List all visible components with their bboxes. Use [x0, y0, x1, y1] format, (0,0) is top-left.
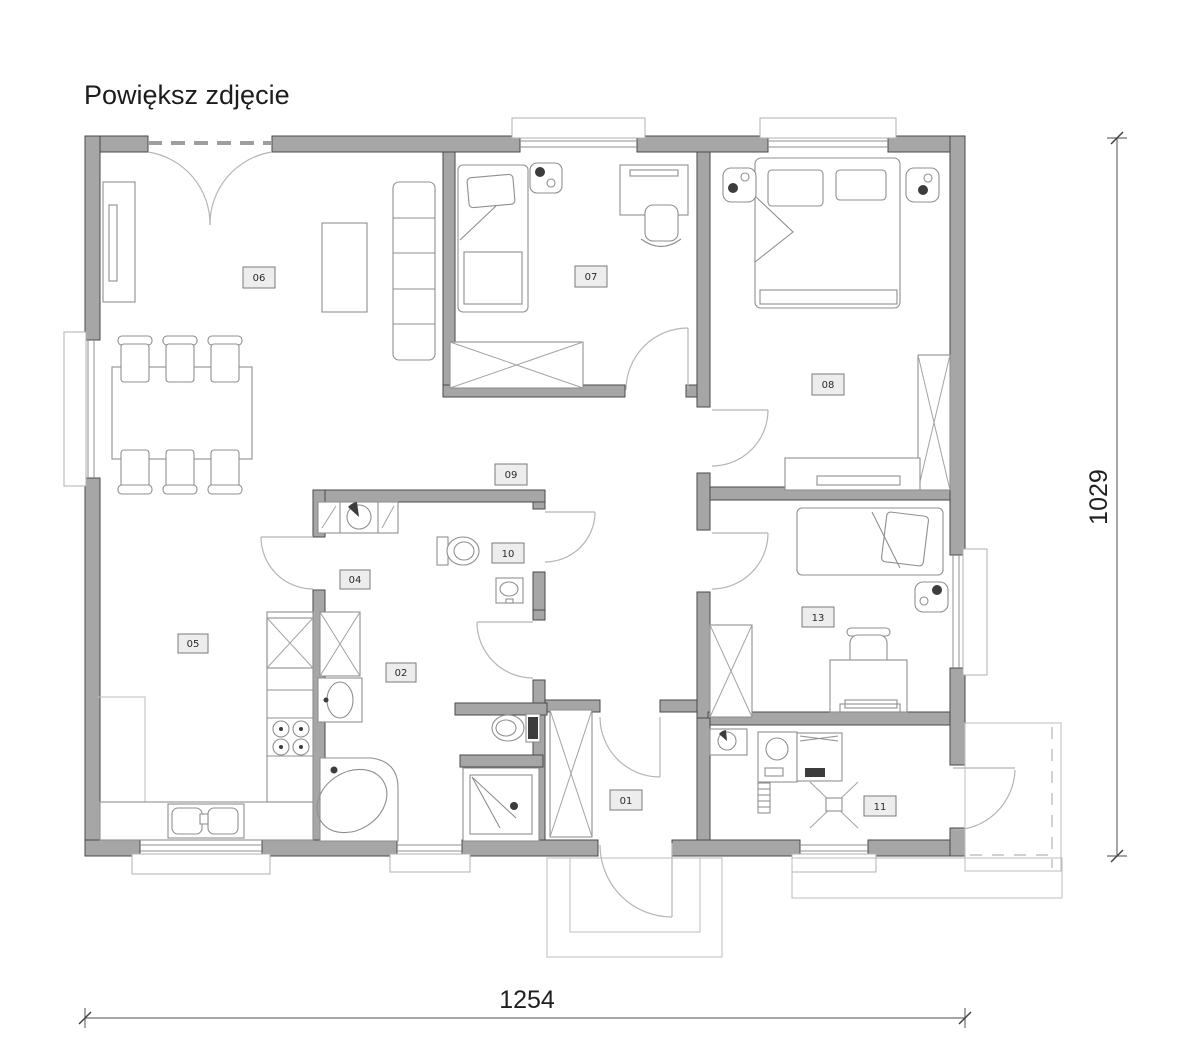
- nightstand-lamp-2a: [723, 168, 756, 202]
- dimension-bottom: 1254: [79, 986, 971, 1028]
- svg-text:04: 04: [349, 575, 362, 586]
- utility-room: [318, 502, 398, 533]
- washer-boiler: [710, 729, 747, 755]
- kitchen-sink: [168, 804, 244, 838]
- bedroom1: [450, 163, 688, 388]
- floor-drain-mark: [810, 782, 858, 828]
- room-label-boiler: 11: [864, 796, 896, 816]
- double-bed: [755, 158, 900, 308]
- room-label-bedroom3: 13: [802, 607, 834, 627]
- coffee-table: [322, 223, 367, 312]
- nightstand-lamp-3: [915, 582, 948, 612]
- wardrobe-2: [918, 355, 950, 490]
- door-bedroom2: [712, 410, 768, 466]
- svg-text:13: 13: [812, 613, 825, 624]
- window-right: [953, 549, 987, 675]
- floorplan-drawing: 06 07 08 09 10 04: [0, 0, 1200, 1056]
- room-label-bathroom: 02: [386, 663, 416, 682]
- room-label-kitchen: 05: [178, 634, 208, 653]
- nightstand-lamp-2b: [906, 168, 939, 202]
- door-terrace: [953, 768, 1015, 830]
- entrance-double-door: [148, 143, 272, 225]
- svg-text:09: 09: [505, 470, 518, 481]
- tv-cabinet: [103, 182, 135, 302]
- dresser-2: [785, 458, 920, 490]
- height-dimension: 1029: [1085, 469, 1113, 525]
- hall: [547, 710, 722, 957]
- svg-text:01: 01: [620, 796, 633, 807]
- door-bedroom1: [626, 328, 688, 390]
- svg-text:06: 06: [253, 273, 266, 284]
- width-dimension: 1254: [499, 986, 555, 1014]
- wardrobe-3: [710, 625, 752, 717]
- hall-wardrobe: [550, 710, 592, 837]
- bathroom: [305, 612, 540, 845]
- window-top-left: [512, 118, 645, 147]
- kitchen-tall-unit: [267, 612, 313, 802]
- toilet-wc: [437, 537, 479, 565]
- single-bed-3: [797, 508, 943, 575]
- room-label-bedroom1: 07: [575, 266, 607, 287]
- svg-text:07: 07: [585, 272, 598, 283]
- window-kitchen: [132, 845, 270, 874]
- svg-text:02: 02: [395, 668, 408, 679]
- room-label-living: 06: [243, 267, 275, 288]
- room-label-corridor: 09: [495, 464, 527, 485]
- desk-1: [620, 165, 688, 247]
- boiler-room: [710, 729, 858, 828]
- svg-text:10: 10: [502, 549, 515, 560]
- bedroom2: [723, 158, 950, 490]
- single-bed-1: [458, 165, 528, 312]
- floorplan-page: Powiększ zdjęcie: [0, 0, 1200, 1056]
- vanity-basin: [318, 678, 362, 722]
- door-hall: [600, 717, 660, 777]
- toilet-bathroom: [492, 714, 540, 742]
- desk-3: [830, 628, 907, 712]
- svg-text:05: 05: [187, 639, 200, 650]
- water-heater: [797, 733, 842, 781]
- radiator: [758, 783, 770, 813]
- entry-porch: [547, 858, 722, 957]
- svg-text:11: 11: [874, 802, 887, 813]
- washer-column: [320, 612, 360, 676]
- door-back-exit: [600, 843, 672, 917]
- shower: [463, 768, 539, 841]
- living-room: [103, 182, 435, 494]
- door-bathroom: [477, 622, 533, 678]
- room-label-utility: 04: [340, 570, 370, 589]
- window-top-right: [760, 118, 896, 147]
- door-wc: [545, 512, 595, 562]
- washbasin-wc: [496, 578, 523, 603]
- room-label-wc: 10: [492, 543, 524, 563]
- room-label-bedroom2: 08: [812, 374, 844, 395]
- svg-text:08: 08: [822, 380, 835, 391]
- window-left: [64, 332, 94, 486]
- dimension-right: 1029: [1085, 132, 1127, 862]
- door-utility: [261, 537, 313, 589]
- door-bedroom3: [712, 533, 768, 589]
- nightstand-lamp-1: [530, 163, 562, 193]
- boiler-unit: [758, 732, 797, 782]
- room-label-hall: 01: [610, 790, 642, 810]
- wardrobe-1: [450, 342, 583, 388]
- sofa: [393, 182, 435, 360]
- window-bathroom: [390, 845, 470, 872]
